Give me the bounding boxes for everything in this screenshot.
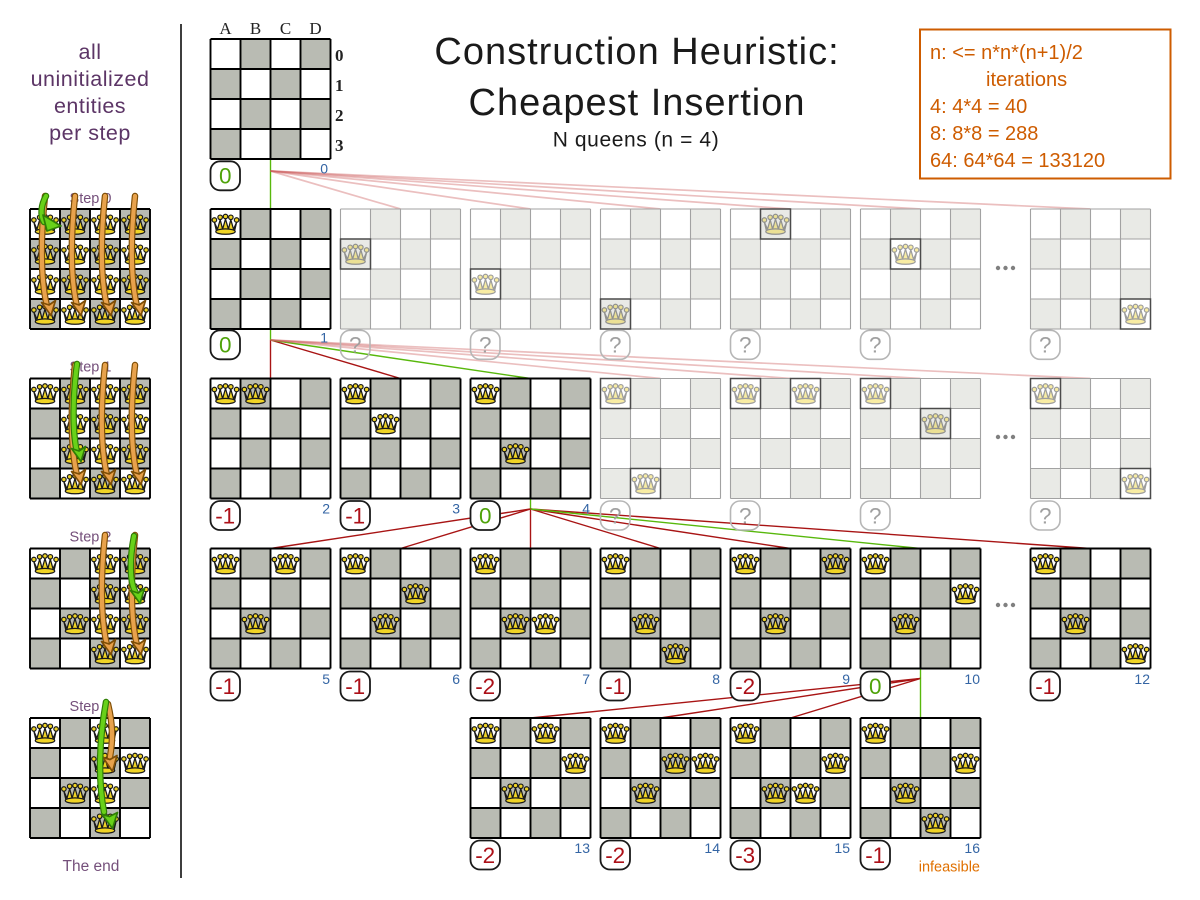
svg-text:-2: -2 bbox=[475, 843, 495, 868]
svg-text:-1: -1 bbox=[345, 503, 365, 528]
svg-text:3: 3 bbox=[452, 500, 460, 516]
svg-text:14: 14 bbox=[704, 840, 720, 856]
svg-text:10: 10 bbox=[964, 671, 980, 687]
svg-text:8: 8*8 = 288: 8: 8*8 = 288 bbox=[930, 123, 1038, 145]
svg-text:13: 13 bbox=[574, 840, 590, 856]
svg-text:2: 2 bbox=[335, 106, 344, 125]
svg-text:12: 12 bbox=[1134, 671, 1150, 687]
svg-text:0: 0 bbox=[335, 46, 344, 65]
svg-text:Cheapest Insertion: Cheapest Insertion bbox=[469, 82, 806, 124]
svg-text:?: ? bbox=[869, 503, 882, 528]
svg-text:uninitialized: uninitialized bbox=[31, 67, 150, 91]
svg-text:?: ? bbox=[1039, 503, 1052, 528]
svg-text:-1: -1 bbox=[1035, 674, 1055, 699]
svg-text:-3: -3 bbox=[735, 843, 755, 868]
svg-text:?: ? bbox=[1039, 333, 1052, 358]
svg-text:15: 15 bbox=[834, 840, 850, 856]
svg-text:9: 9 bbox=[842, 671, 850, 687]
svg-text:infeasible: infeasible bbox=[919, 860, 980, 876]
svg-text:?: ? bbox=[479, 333, 492, 358]
svg-text:2: 2 bbox=[322, 500, 330, 516]
svg-text:-1: -1 bbox=[215, 503, 235, 528]
svg-text:-1: -1 bbox=[865, 843, 885, 868]
svg-text:16: 16 bbox=[964, 840, 980, 856]
svg-text:-1: -1 bbox=[215, 674, 235, 699]
svg-text:A: A bbox=[219, 19, 232, 38]
svg-text:?: ? bbox=[609, 503, 622, 528]
svg-text:iterations: iterations bbox=[986, 69, 1067, 91]
svg-text:7: 7 bbox=[582, 671, 590, 687]
svg-text:n: <= n*n*(n+1)/2: n: <= n*n*(n+1)/2 bbox=[930, 42, 1083, 64]
svg-text:?: ? bbox=[739, 503, 752, 528]
svg-text:entities: entities bbox=[54, 94, 126, 118]
svg-text:per step: per step bbox=[49, 121, 131, 145]
svg-text:1: 1 bbox=[320, 330, 328, 346]
svg-text:The end: The end bbox=[63, 858, 120, 875]
svg-text:B: B bbox=[250, 19, 261, 38]
svg-text:?: ? bbox=[609, 333, 622, 358]
svg-text:0: 0 bbox=[219, 333, 232, 358]
svg-text:D: D bbox=[309, 19, 321, 38]
svg-text:-2: -2 bbox=[735, 674, 755, 699]
svg-text:-2: -2 bbox=[475, 674, 495, 699]
svg-text:Construction Heuristic:: Construction Heuristic: bbox=[434, 31, 839, 73]
svg-text:N queens (n = 4): N queens (n = 4) bbox=[553, 129, 720, 152]
svg-text:64: 64*64 = 133120: 64: 64*64 = 133120 bbox=[930, 150, 1105, 172]
svg-text:-2: -2 bbox=[605, 843, 625, 868]
svg-text:0: 0 bbox=[219, 164, 232, 189]
svg-text:0: 0 bbox=[869, 674, 882, 699]
svg-text:6: 6 bbox=[452, 671, 460, 687]
svg-text:5: 5 bbox=[322, 671, 330, 687]
svg-text:all: all bbox=[78, 40, 101, 64]
svg-text:-1: -1 bbox=[605, 674, 625, 699]
svg-text:4: 4*4 = 40: 4: 4*4 = 40 bbox=[930, 96, 1027, 118]
svg-text:0: 0 bbox=[320, 161, 328, 177]
svg-text:8: 8 bbox=[712, 671, 720, 687]
svg-text:4: 4 bbox=[582, 500, 590, 516]
svg-text:1: 1 bbox=[335, 76, 344, 95]
svg-text:0: 0 bbox=[479, 503, 492, 528]
svg-text:?: ? bbox=[739, 333, 752, 358]
svg-text:-1: -1 bbox=[345, 674, 365, 699]
svg-text:?: ? bbox=[349, 333, 362, 358]
svg-text:?: ? bbox=[869, 333, 882, 358]
svg-text:C: C bbox=[280, 19, 291, 38]
svg-text:3: 3 bbox=[335, 136, 344, 155]
